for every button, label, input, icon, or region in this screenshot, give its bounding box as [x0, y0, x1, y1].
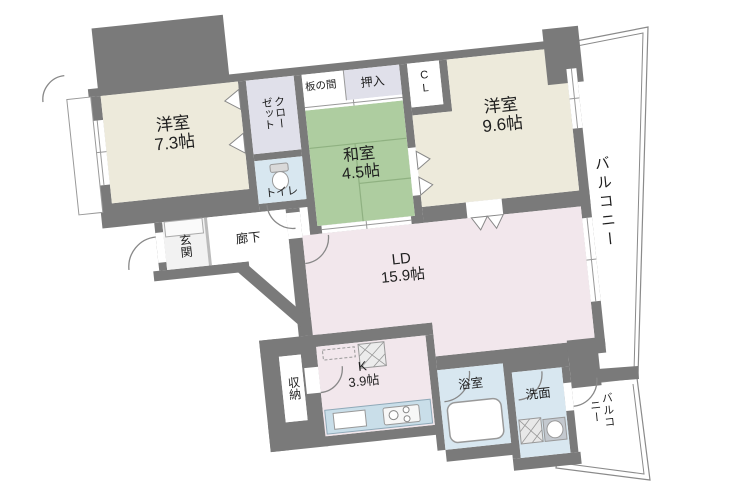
pillar-northwest: [92, 15, 230, 96]
door-slot-storage: [304, 367, 321, 394]
floor-plan-drawing: [0, 0, 750, 500]
room-itanoma: [302, 70, 347, 104]
door-arc-porch: [40, 76, 66, 102]
room-cl: [407, 60, 443, 107]
kitchen-sink-icon: [333, 410, 366, 429]
room-japanese: [305, 100, 415, 226]
washer-icon: [519, 418, 543, 444]
room-hallway: [208, 209, 291, 265]
kitchen-hatch-square: [358, 342, 386, 369]
dwelling: [36, 0, 624, 500]
floor-plan: 洋室7.3帖 洋室9.6帖 和室4.5帖 LD15.9帖 K3.9帖 クロー ゼ…: [0, 0, 750, 500]
room-oshiire: [343, 65, 402, 101]
pillar-northeast: [542, 26, 584, 85]
door-slot-hallway-ld: [286, 212, 303, 239]
stove-icon: [383, 404, 421, 425]
sink-icon: [543, 417, 567, 441]
room-closet: [246, 76, 301, 155]
bathtub-icon: [447, 398, 505, 443]
door-arc-entry: [126, 237, 159, 270]
